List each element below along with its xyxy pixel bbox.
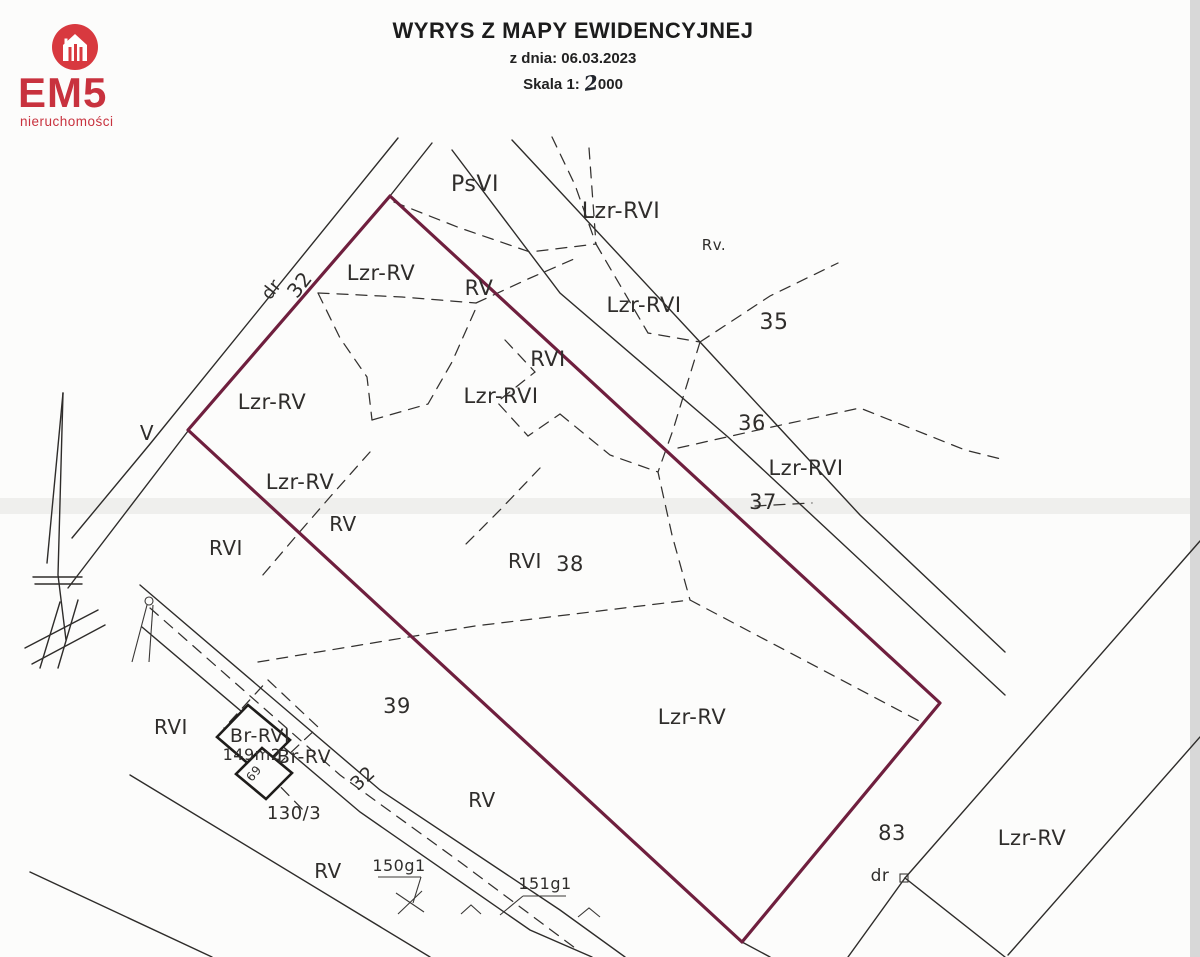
map-label-36: 36 [738, 411, 766, 435]
map-label-150g1: 150g1 [372, 856, 425, 875]
map-label-lzr-rvi-4: Lzr-RVI [768, 456, 843, 480]
scanned-cadastral-extract-page: EM5 nieruchomości WYRYS Z MAPY EWIDENCYJ… [0, 0, 1200, 957]
map-label-rvi-2: RVI [209, 536, 243, 560]
scan-artifacts [0, 0, 1200, 957]
map-label-br-rv: Br-RV [277, 746, 331, 768]
map-label-dr-top: dr [257, 275, 286, 304]
map-label-130-3: 130/3 [267, 803, 321, 824]
map-label-lzr-rvi-2: Lzr-RVI [606, 293, 681, 317]
chevron-mark [578, 908, 600, 917]
map-label-lzr-rv-5: Lzr-RV [998, 826, 1067, 850]
map-label-rvi-4: RVI [154, 715, 188, 739]
map-label-psvi: PsVI [451, 172, 499, 197]
map-label-lzr-rv-2: Lzr-RV [238, 390, 307, 414]
cadastral-map: PsVILzr-RVIRv.dr32Lzr-RVRVLzr-RVI35RVILz… [0, 0, 1200, 957]
chevron-mark [461, 905, 481, 914]
landuse-dashed-lines [150, 137, 1005, 948]
map-label-rv-small: Rv. [702, 236, 726, 254]
map-label-83: 83 [878, 821, 906, 845]
map-label-lzr-rv-3: Lzr-RV [266, 470, 335, 494]
map-label-32-top: 32 [282, 267, 317, 303]
map-label-rv-1: RV [465, 276, 494, 300]
map-label-35: 35 [760, 310, 789, 335]
map-label-rv-4: RV [314, 859, 341, 883]
map-label-dr-bottom: dr [871, 866, 890, 886]
map-label-rv-2: RV [329, 512, 356, 536]
map-label-rvi-1: RVI [530, 347, 566, 371]
map-label-lzr-rvi-3: Lzr-RVI [463, 384, 538, 408]
map-label-32-bottom: 32 [346, 762, 379, 795]
survey-point-circle [145, 597, 153, 605]
map-label-lzr-rvi-top: Lzr-RVI [582, 199, 661, 224]
map-label-lzr-rv-1: Lzr-RV [347, 261, 416, 285]
map-label-39: 39 [383, 694, 411, 718]
map-label-rv-3: RV [468, 788, 495, 812]
map-label-151g1: 151g1 [518, 874, 571, 893]
map-label-38: 38 [556, 552, 584, 576]
map-label-area-149m2: 149m2 [223, 745, 282, 764]
map-label-lzr-rv-4: Lzr-RV [658, 705, 727, 729]
map-label-37: 37 [749, 490, 777, 514]
map-label-br-rvi: Br-RVI [230, 725, 290, 747]
map-label-v-edge: V [140, 421, 154, 445]
map-label-rvi-3: RVI [508, 549, 542, 573]
